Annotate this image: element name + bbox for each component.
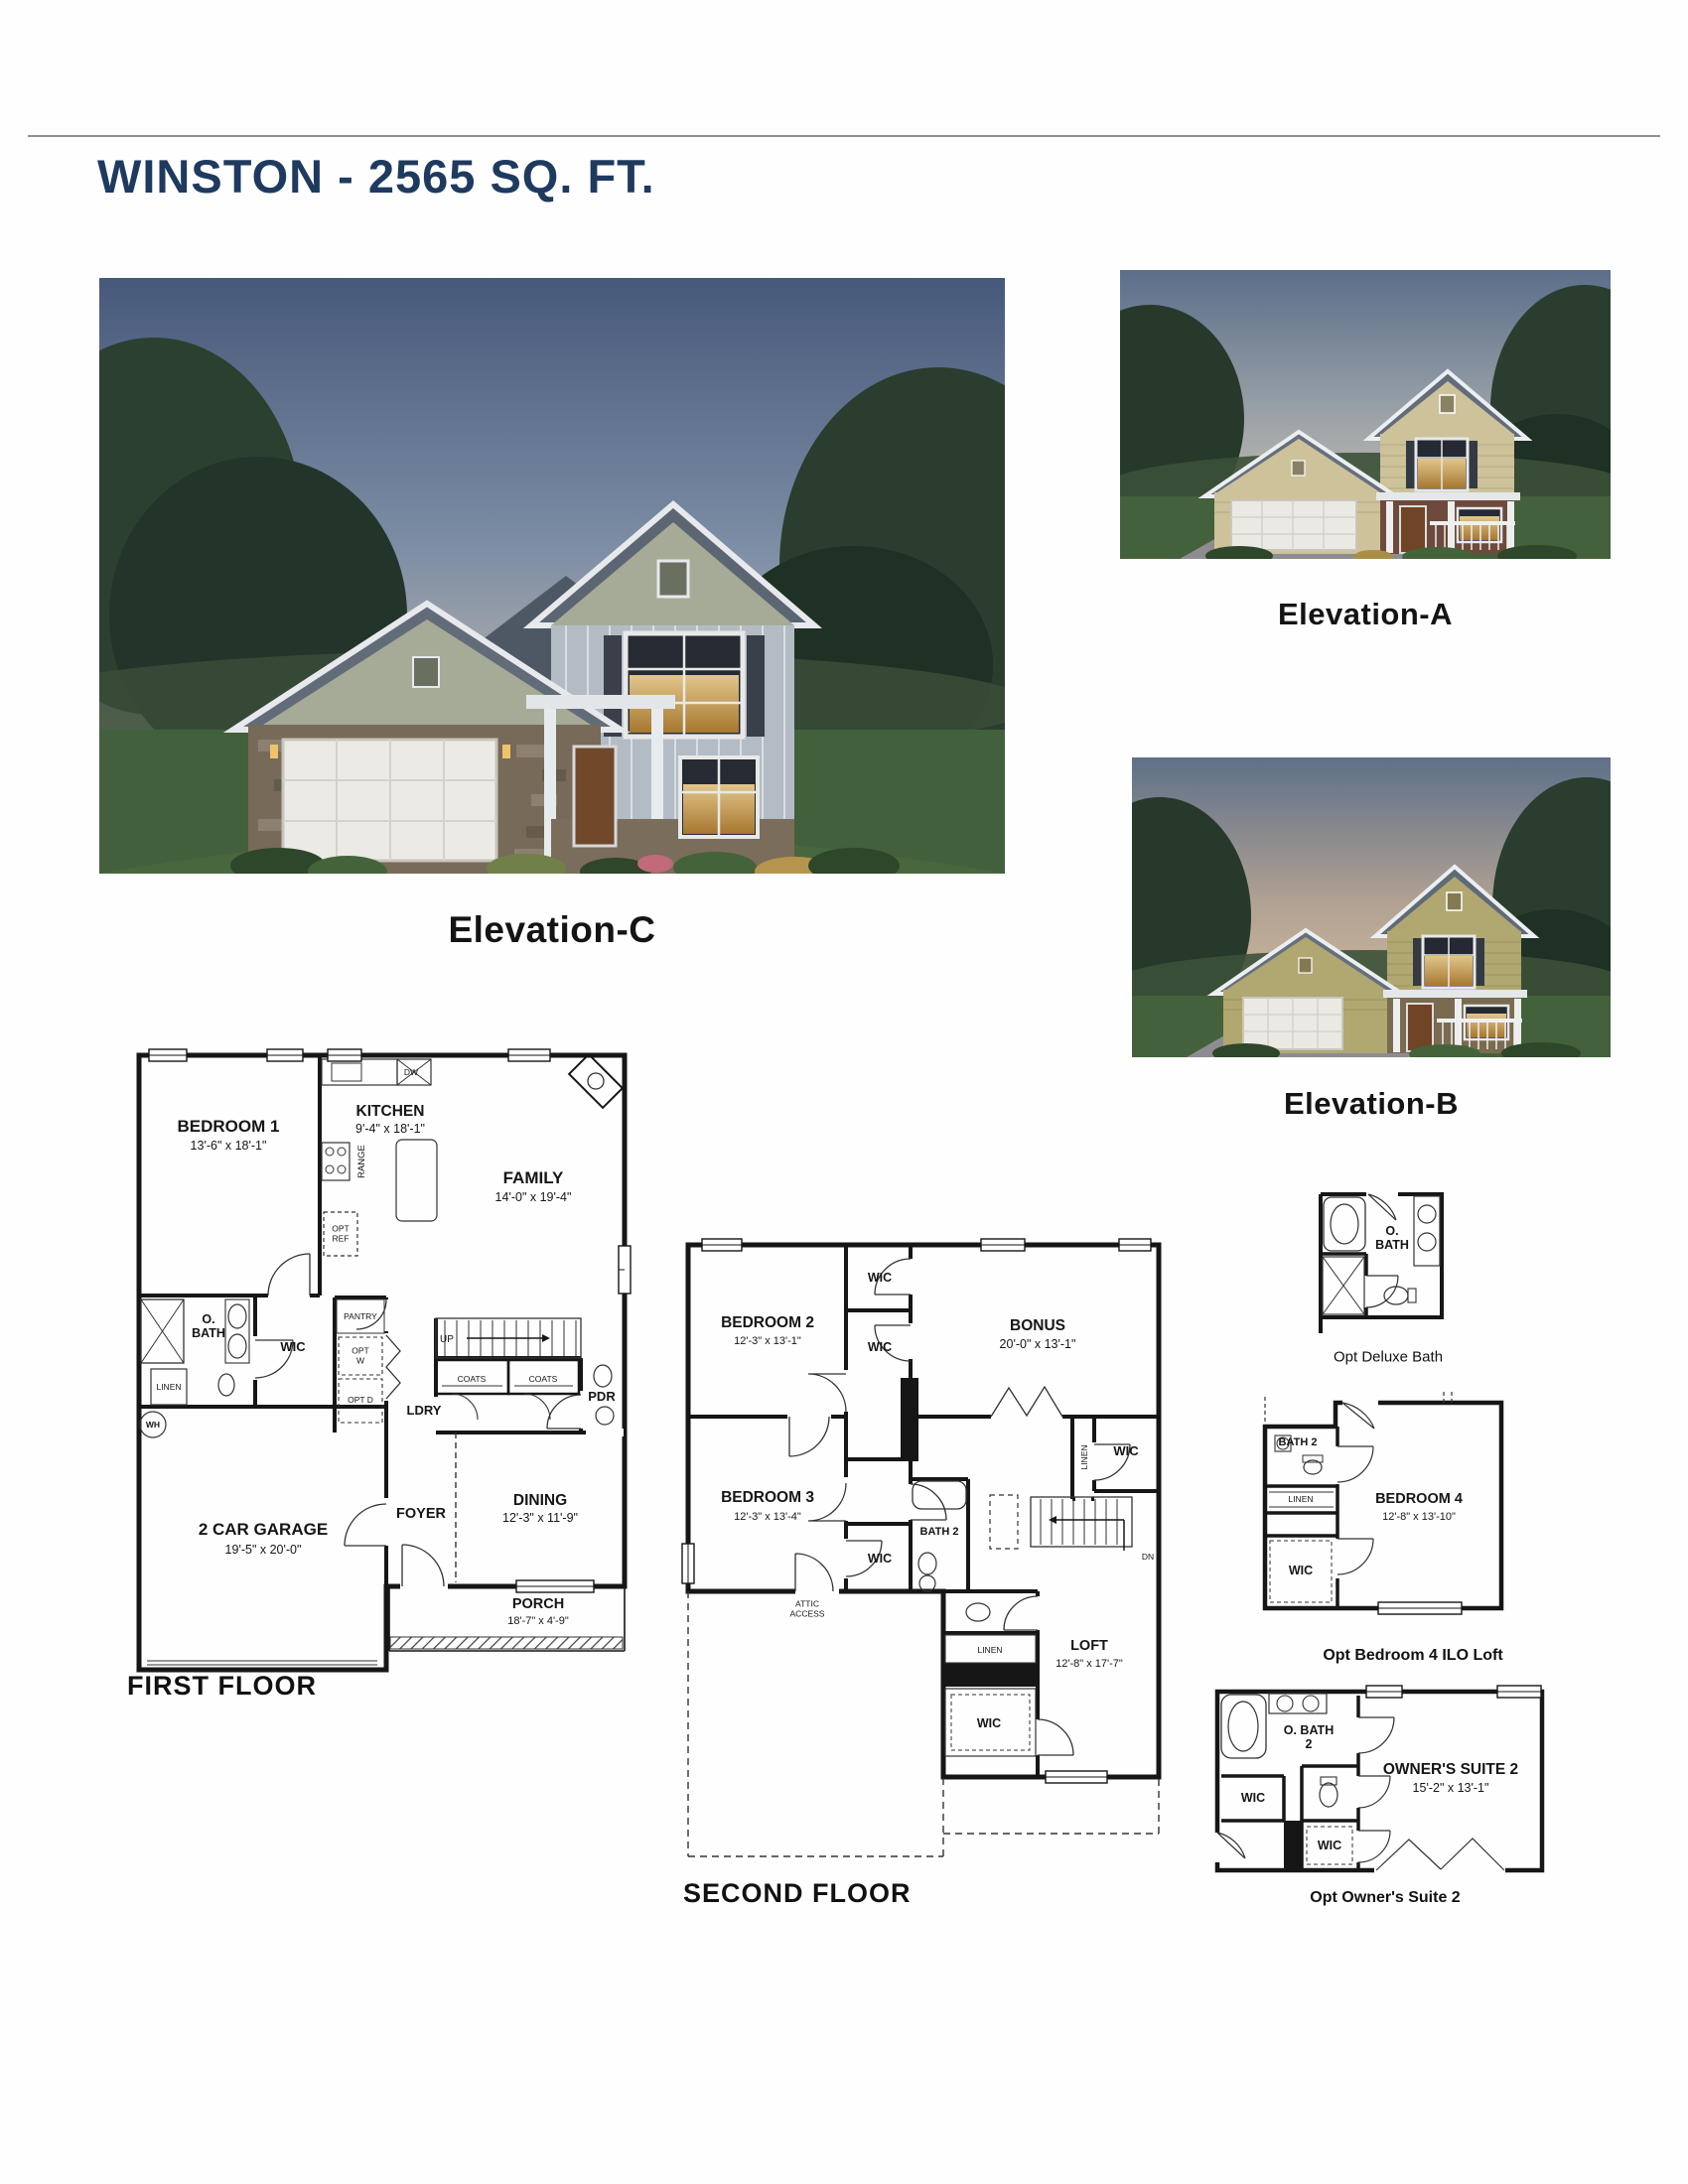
- wic-top-label: WIC: [868, 1271, 892, 1285]
- garage-dims: 19'-5" x 20'-0": [225, 1543, 302, 1557]
- linen-label: LINEN: [156, 1382, 181, 1392]
- front-door: [1407, 1004, 1433, 1051]
- dining-name: DINING: [513, 1492, 567, 1509]
- front-door: [574, 747, 616, 846]
- second-floor-title: SECOND FLOOR: [683, 1878, 912, 1909]
- opt-bedroom4-drawing: BATH 2 LINEN WIC BEDROOM 4 12'-8" x 13'-…: [1253, 1392, 1521, 1640]
- wic-mid-label: WIC: [868, 1340, 892, 1354]
- bedroom4-name: BEDROOM 4: [1375, 1491, 1463, 1507]
- first-floor-plan: BEDROOM 1 13'-6" x 18'-1" KITCHEN 9'-4" …: [89, 1037, 635, 1712]
- opt-owners-suite2-drawing: WIC WIC OWNER'S SUITE 2 15'-2" x 13'-1": [1209, 1682, 1557, 1880]
- pantry-label: PANTRY: [344, 1311, 377, 1321]
- kitchen-dims: 9'-4" x 18'-1": [355, 1122, 425, 1136]
- loft-dims: 12'-8" x 17'-7": [1055, 1658, 1123, 1670]
- opt-washer-label: OPT W: [348, 1346, 373, 1365]
- bedroom1-name: BEDROOM 1: [178, 1117, 280, 1136]
- front-door: [1400, 506, 1426, 553]
- owners-bath-label: O. BATH: [187, 1312, 230, 1340]
- elevation-b-label: Elevation-B: [1132, 1086, 1611, 1122]
- b4-bath2-label: BATH 2: [1279, 1436, 1318, 1448]
- up-label: UP: [440, 1334, 454, 1345]
- attic-vent: [413, 657, 439, 687]
- dw-label: DW: [404, 1067, 418, 1077]
- bedroom2-dims: 12'-3" x 13'-1": [734, 1335, 801, 1347]
- porch-dims: 18'-7" x 4'-9": [507, 1615, 569, 1627]
- elevation-c-label: Elevation-C: [99, 909, 1005, 951]
- opt-owners-suite2-plan: WIC WIC OWNER'S SUITE 2 15'-2" x 13'-1" …: [1209, 1682, 1567, 1915]
- garage-name: 2 CAR GARAGE: [199, 1520, 328, 1539]
- coats-left-label: COATS: [458, 1374, 487, 1384]
- pdr-label: PDR: [588, 1389, 616, 1404]
- garage-door: [1231, 500, 1356, 550]
- elevation-c-photo: [99, 278, 1005, 874]
- range-label: RANGE: [356, 1145, 367, 1178]
- opt-ref-label: OPT REF: [326, 1224, 355, 1243]
- bedroom2-name: BEDROOM 2: [721, 1314, 814, 1331]
- opt-deluxe-bath-plan: O. BATH Opt Deluxe Bath: [1311, 1186, 1479, 1375]
- page-title: WINSTON - 2565 SQ. FT.: [97, 149, 655, 204]
- brochure-page: WINSTON - 2565 SQ. FT.: [0, 0, 1688, 2184]
- bedroom1-dims: 13'-6" x 18'-1": [191, 1139, 267, 1153]
- os2-wic-a-label: WIC: [1241, 1791, 1265, 1805]
- bedroom3-dims: 12'-3" x 13'-4": [734, 1511, 801, 1523]
- coats-right-label: COATS: [529, 1374, 558, 1384]
- deluxe-obath-label: O. BATH: [1370, 1224, 1414, 1252]
- b4-wic-label: WIC: [1289, 1564, 1313, 1577]
- bedroom4-dims: 12'-8" x 13'-10": [1382, 1511, 1456, 1523]
- loft-name: LOFT: [1070, 1638, 1108, 1654]
- top-divider: [28, 135, 1660, 137]
- attic-vent: [658, 561, 688, 597]
- elevation-a-photo: [1120, 270, 1611, 559]
- bonus-dims: 20'-0" x 13'-1": [1000, 1337, 1076, 1351]
- wic-loft-label: WIC: [977, 1716, 1001, 1730]
- wic-right-label: WIC: [1113, 1443, 1139, 1458]
- os2-obath2-label: O. BATH 2: [1283, 1723, 1335, 1751]
- first-floor-title: FIRST FLOOR: [127, 1671, 317, 1702]
- opt-deluxe-bath-caption: Opt Deluxe Bath: [1334, 1349, 1443, 1366]
- porch-name: PORCH: [512, 1596, 564, 1612]
- kitchen-name: KITCHEN: [356, 1103, 425, 1120]
- elevation-a-illustration: [1120, 270, 1611, 559]
- second-floor-plan: BEDROOM 2 12'-3" x 13'-1" WIC WIC BONUS …: [680, 1231, 1177, 1926]
- wic-bedroom3-label: WIC: [868, 1552, 892, 1566]
- family-dims: 14'-0" x 19'-4": [495, 1190, 572, 1204]
- elevation-b-illustration: [1132, 757, 1611, 1057]
- bonus-name: BONUS: [1010, 1317, 1065, 1334]
- opt-dryer-label: OPT D: [348, 1396, 373, 1406]
- opt-owners-suite2-caption: Opt Owner's Suite 2: [1310, 1889, 1460, 1907]
- owners-suite2-dims: 15'-2" x 13'-1": [1413, 1781, 1489, 1795]
- opt-bedroom4-caption: Opt Bedroom 4 ILO Loft: [1323, 1647, 1502, 1665]
- linen-loft-label: LINEN: [977, 1645, 1002, 1655]
- opt-bedroom4-plan: BATH 2 LINEN WIC BEDROOM 4 12'-8" x 13'-…: [1253, 1392, 1531, 1680]
- owners-suite2-name: OWNER'S SUITE 2: [1383, 1761, 1518, 1778]
- family-name: FAMILY: [503, 1168, 564, 1187]
- ldry-label: LDRY: [407, 1403, 442, 1418]
- opt-deluxe-bath-drawing: [1311, 1186, 1470, 1345]
- elevation-c-illustration: [99, 278, 1005, 874]
- second-floor-drawing: BEDROOM 2 12'-3" x 13'-1" WIC WIC BONUS …: [680, 1231, 1177, 1871]
- elevation-b-photo: [1132, 757, 1611, 1057]
- b4-linen-label: LINEN: [1288, 1494, 1313, 1504]
- dining-dims: 12'-3" x 11'-9": [502, 1511, 578, 1525]
- foyer-label: FOYER: [396, 1506, 446, 1522]
- wh-label: WH: [146, 1420, 160, 1430]
- os2-wic-b-label: WIC: [1318, 1839, 1341, 1852]
- attic-access-label: ATTIC ACCESS: [778, 1599, 836, 1618]
- linen-hall-label: LINEN: [1079, 1444, 1089, 1469]
- bedroom3-name: BEDROOM 3: [721, 1489, 814, 1506]
- dn-label: DN: [1142, 1552, 1154, 1562]
- bath2-label: BATH 2: [920, 1526, 959, 1538]
- elevation-a-label: Elevation-A: [1120, 597, 1611, 632]
- wic-label: WIC: [280, 1339, 306, 1354]
- shutter: [747, 635, 765, 737]
